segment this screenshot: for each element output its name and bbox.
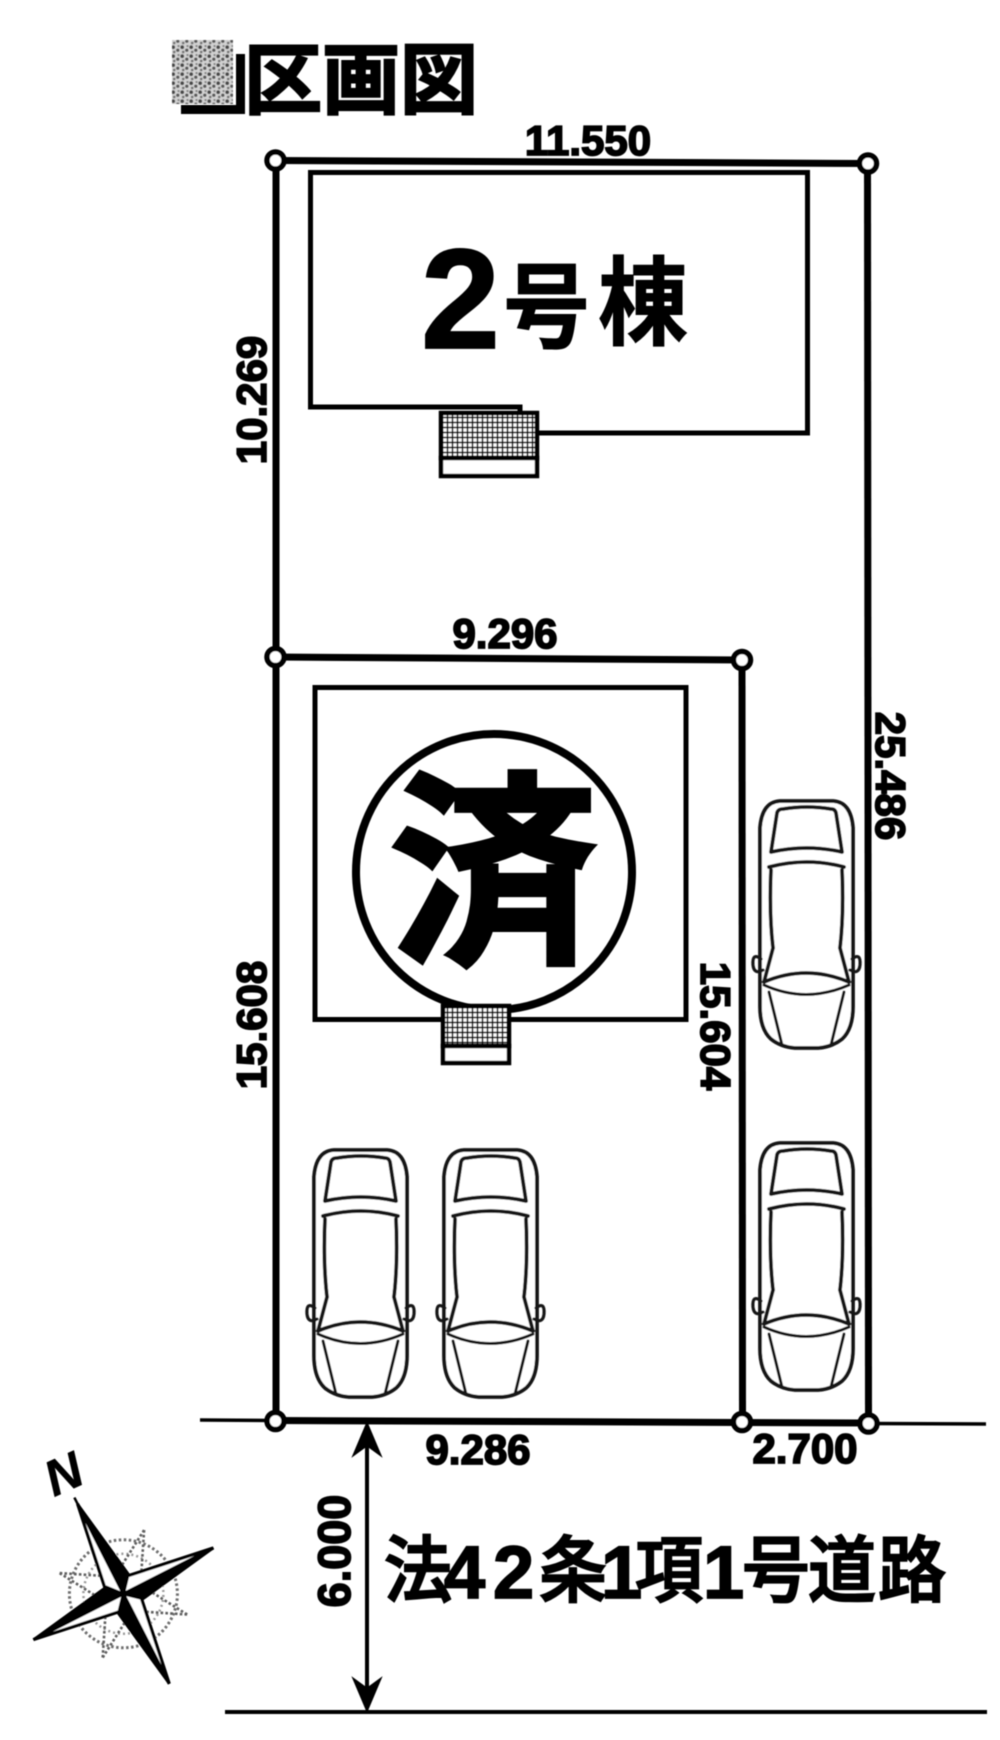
svg-text:2: 2 — [421, 220, 500, 379]
svg-text:1: 1 — [703, 1531, 744, 1614]
svg-text:25.486: 25.486 — [867, 712, 914, 840]
svg-text:15.608: 15.608 — [228, 961, 275, 1089]
svg-text:2.700: 2.700 — [752, 1425, 857, 1472]
svg-text:6.000: 6.000 — [309, 1495, 360, 1608]
svg-text:9.296: 9.296 — [452, 610, 557, 657]
svg-text:10.269: 10.269 — [228, 336, 275, 464]
svg-text:4: 4 — [444, 1531, 485, 1614]
svg-text:11.550: 11.550 — [525, 117, 651, 164]
svg-text:2: 2 — [493, 1531, 534, 1614]
svg-text:1: 1 — [601, 1531, 642, 1614]
svg-text:9.286: 9.286 — [425, 1426, 530, 1473]
svg-text:15.604: 15.604 — [692, 962, 739, 1091]
